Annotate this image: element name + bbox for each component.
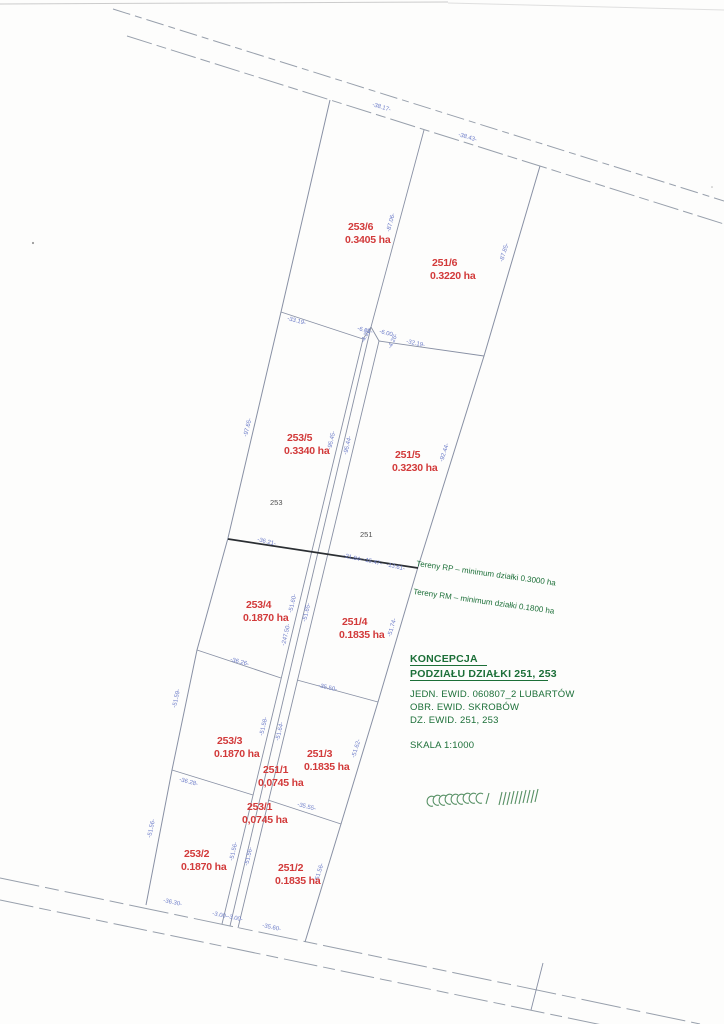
scan-edge-line	[448, 3, 724, 10]
row-boundary-253-6-5	[281, 312, 363, 339]
dimension-label: -33.19-	[286, 316, 306, 327]
scan-speck	[711, 186, 713, 188]
parcel-id-label: 251/6	[432, 257, 458, 269]
parcel-id-label: 253/5	[287, 432, 313, 444]
parcel-area-label: 0.3405 ha	[345, 234, 391, 246]
plan-drawing: -38.17- -38.43- -87.06- -87.85- -33.19- …	[0, 0, 724, 1024]
parcel-id-label: 253/1	[247, 801, 273, 813]
east-boundary	[305, 166, 540, 942]
dimension-label: -3.00-	[212, 911, 229, 920]
dimension-label: -32.19-	[406, 339, 426, 349]
parcel-id-label: 251/4	[342, 616, 368, 628]
road-line	[0, 878, 700, 1024]
dimension-label: -36.30-	[163, 898, 183, 908]
parcel-area-label: 0.1835 ha	[304, 761, 350, 773]
scribble-ticks	[499, 789, 538, 805]
signature-scribble	[427, 789, 538, 806]
scan-speck	[32, 242, 34, 244]
dimension-label: -36.28-	[178, 777, 198, 788]
dimension-label: -21.84-	[343, 553, 363, 563]
obr-ewid-text: OBR. EWID. SKROBÓW	[410, 702, 519, 713]
parcel-id-label: 253/4	[246, 599, 272, 611]
dimension-label: -51.60-	[288, 594, 298, 614]
neighbour-boundary-tick	[531, 963, 543, 1010]
parcel-id-label: 251/3	[307, 748, 333, 760]
dimension-label: -92.44-	[439, 443, 451, 463]
zoning-note-rm: Tereny RM – minimum działki 0.1800 ha	[413, 587, 556, 616]
dimension-label: -35.50-	[318, 683, 338, 693]
parcel-area-label: 0.3340 ha	[284, 445, 330, 457]
top-road	[113, 9, 724, 224]
dimension-labels: -38.17- -38.43- -87.06- -87.85- -33.19- …	[147, 102, 510, 933]
dimension-label: -38.17-	[371, 102, 391, 113]
bottom-road	[0, 878, 700, 1024]
parcel-id-label: 251/5	[395, 449, 421, 461]
dimension-label: -51.59-	[172, 689, 182, 709]
dimension-label: -51.74-	[387, 618, 398, 638]
dimension-label: -247.50-	[281, 623, 292, 646]
parcel-id-label: 253/2	[184, 848, 210, 860]
scan-edge-line	[0, 2, 448, 4]
parcel-area-label: 0.1835 ha	[275, 875, 321, 887]
parcel-area-label: 0.3230 ha	[392, 462, 438, 474]
dimension-label: -87.06-	[386, 213, 397, 233]
zoning-notes: Tereny RP – minimum działki 0.3000 ha Te…	[413, 559, 557, 616]
parcel-id-label: 253/3	[217, 735, 243, 747]
dimension-label: -51.65-	[302, 603, 312, 623]
column-divider-upper	[371, 130, 424, 327]
row-boundary-251-4-3	[297, 680, 378, 702]
scribble-arcs	[427, 793, 489, 806]
dimension-label: -51.56-	[147, 819, 157, 839]
title-line-1: KONCEPCJA	[410, 653, 478, 665]
dimension-label: -35.60-	[262, 923, 282, 933]
road-line	[0, 900, 660, 1024]
dimension-label: -38.43-	[457, 132, 477, 143]
parcel-area-label: 0,0745 ha	[242, 814, 288, 826]
road-line	[113, 9, 724, 201]
parcel-area-label: 0.1870 ha	[214, 748, 260, 760]
parcel-area-label: 0.1835 ha	[339, 629, 385, 641]
dimension-label: -51.56-	[244, 847, 254, 867]
dimension-label: -36.26-	[229, 657, 249, 668]
parcel-id-label: 251/1	[263, 764, 289, 776]
parent-parcel-label: 251	[360, 530, 373, 539]
title-line-2: PODZIAŁU DZIAŁKI 251, 253	[410, 668, 557, 680]
parent-parcel-labels: 253 251	[270, 498, 373, 539]
parcel-id-label: 253/6	[348, 221, 374, 233]
scanned-cadastral-plan-page: -38.17- -38.43- -87.06- -87.85- -33.19- …	[0, 0, 724, 1024]
parcel-id-label: 251/2	[278, 862, 304, 874]
parcel-area-label: 0.1870 ha	[181, 861, 227, 873]
dimension-label: -35.55-	[297, 802, 317, 812]
dimension-label: -87.85-	[499, 243, 510, 263]
parcel-area-label: 0,0745 ha	[258, 777, 304, 789]
dimension-label: -13.61-	[386, 562, 406, 572]
dimension-label: -51.62-	[351, 739, 362, 759]
parcel-area-label: 0.1870 ha	[243, 612, 289, 624]
dz-ewid-text: DZ. EWID. 251, 253	[410, 715, 499, 726]
jedn-ewid-text: JEDN. EWID. 060807_2 LUBARTÓW	[410, 689, 575, 700]
parcel-area-label: 0.3220 ha	[430, 270, 476, 282]
scan-artifacts	[0, 2, 724, 244]
title-block: KONCEPCJA PODZIAŁU DZIAŁKI 251, 253 JEDN…	[410, 653, 575, 751]
road-line	[127, 36, 724, 224]
dimension-label: -15.47-	[363, 557, 383, 567]
zoning-note-rp: Tereny RP – minimum działki 0.3000 ha	[416, 559, 557, 588]
dimension-label: -36.21-	[257, 537, 277, 547]
parent-parcel-label: 253	[270, 498, 283, 507]
scale-text: SKALA 1:1000	[410, 740, 474, 751]
parcel-boundaries	[146, 100, 540, 942]
